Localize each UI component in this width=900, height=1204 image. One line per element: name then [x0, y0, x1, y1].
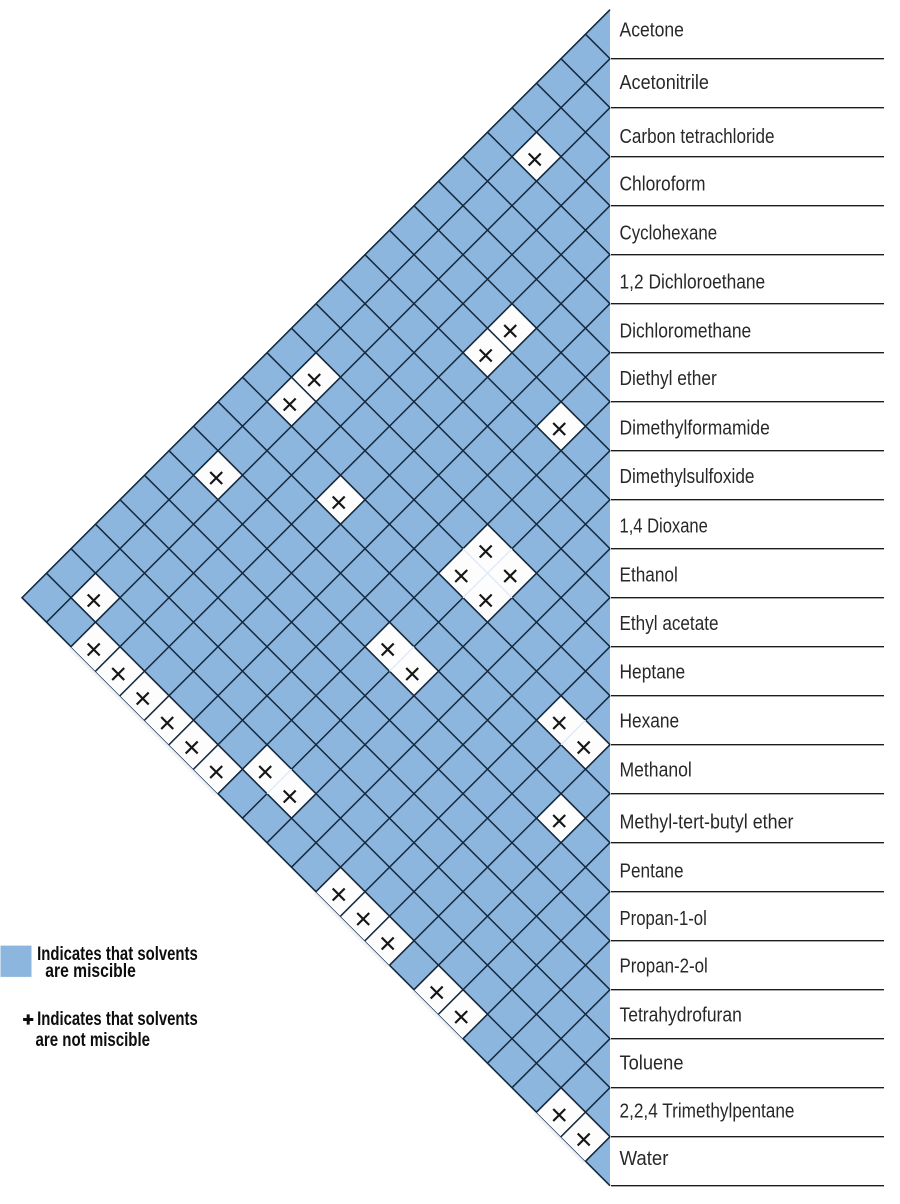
svg-text:Dimethylsulfoxide: Dimethylsulfoxide: [620, 466, 755, 488]
svg-text:Toluene: Toluene: [620, 1052, 684, 1074]
svg-text:1,4 Dioxane: 1,4 Dioxane: [620, 515, 708, 537]
svg-text:Methanol: Methanol: [620, 760, 692, 782]
svg-text:Pentane: Pentane: [620, 861, 684, 883]
svg-text:are not miscible: are not miscible: [36, 1029, 151, 1051]
svg-text:Tetrahydrofuran: Tetrahydrofuran: [620, 1005, 742, 1027]
svg-text:1,2 Dichloroethane: 1,2 Dichloroethane: [620, 272, 766, 294]
svg-text:Methyl-tert-butyl ether: Methyl-tert-butyl ether: [620, 812, 794, 834]
svg-text:Acetonitrile: Acetonitrile: [620, 72, 709, 94]
svg-text:Indicates that solvents: Indicates that solvents: [37, 1008, 198, 1030]
svg-text:Carbon tetrachloride: Carbon tetrachloride: [620, 126, 775, 148]
svg-text:Propan-1-ol: Propan-1-ol: [620, 908, 707, 930]
svg-text:Hexane: Hexane: [620, 710, 680, 732]
svg-text:Chloroform: Chloroform: [620, 174, 706, 196]
svg-text:2,2,4 Trimethylpentane: 2,2,4 Trimethylpentane: [620, 1100, 795, 1122]
svg-text:Ethyl acetate: Ethyl acetate: [620, 613, 719, 635]
svg-text:Diethyl ether: Diethyl ether: [620, 368, 717, 390]
svg-text:Acetone: Acetone: [620, 20, 684, 42]
svg-text:Ethanol: Ethanol: [620, 565, 678, 587]
svg-text:Dichloromethane: Dichloromethane: [620, 320, 752, 342]
svg-text:are miscible: are miscible: [45, 960, 136, 982]
svg-text:Water: Water: [620, 1148, 669, 1170]
svg-text:Propan-2-ol: Propan-2-ol: [620, 956, 708, 978]
svg-text:Dimethylformamide: Dimethylformamide: [620, 418, 770, 440]
svg-text:Cyclohexane: Cyclohexane: [620, 223, 718, 245]
svg-text:Heptane: Heptane: [620, 661, 686, 683]
